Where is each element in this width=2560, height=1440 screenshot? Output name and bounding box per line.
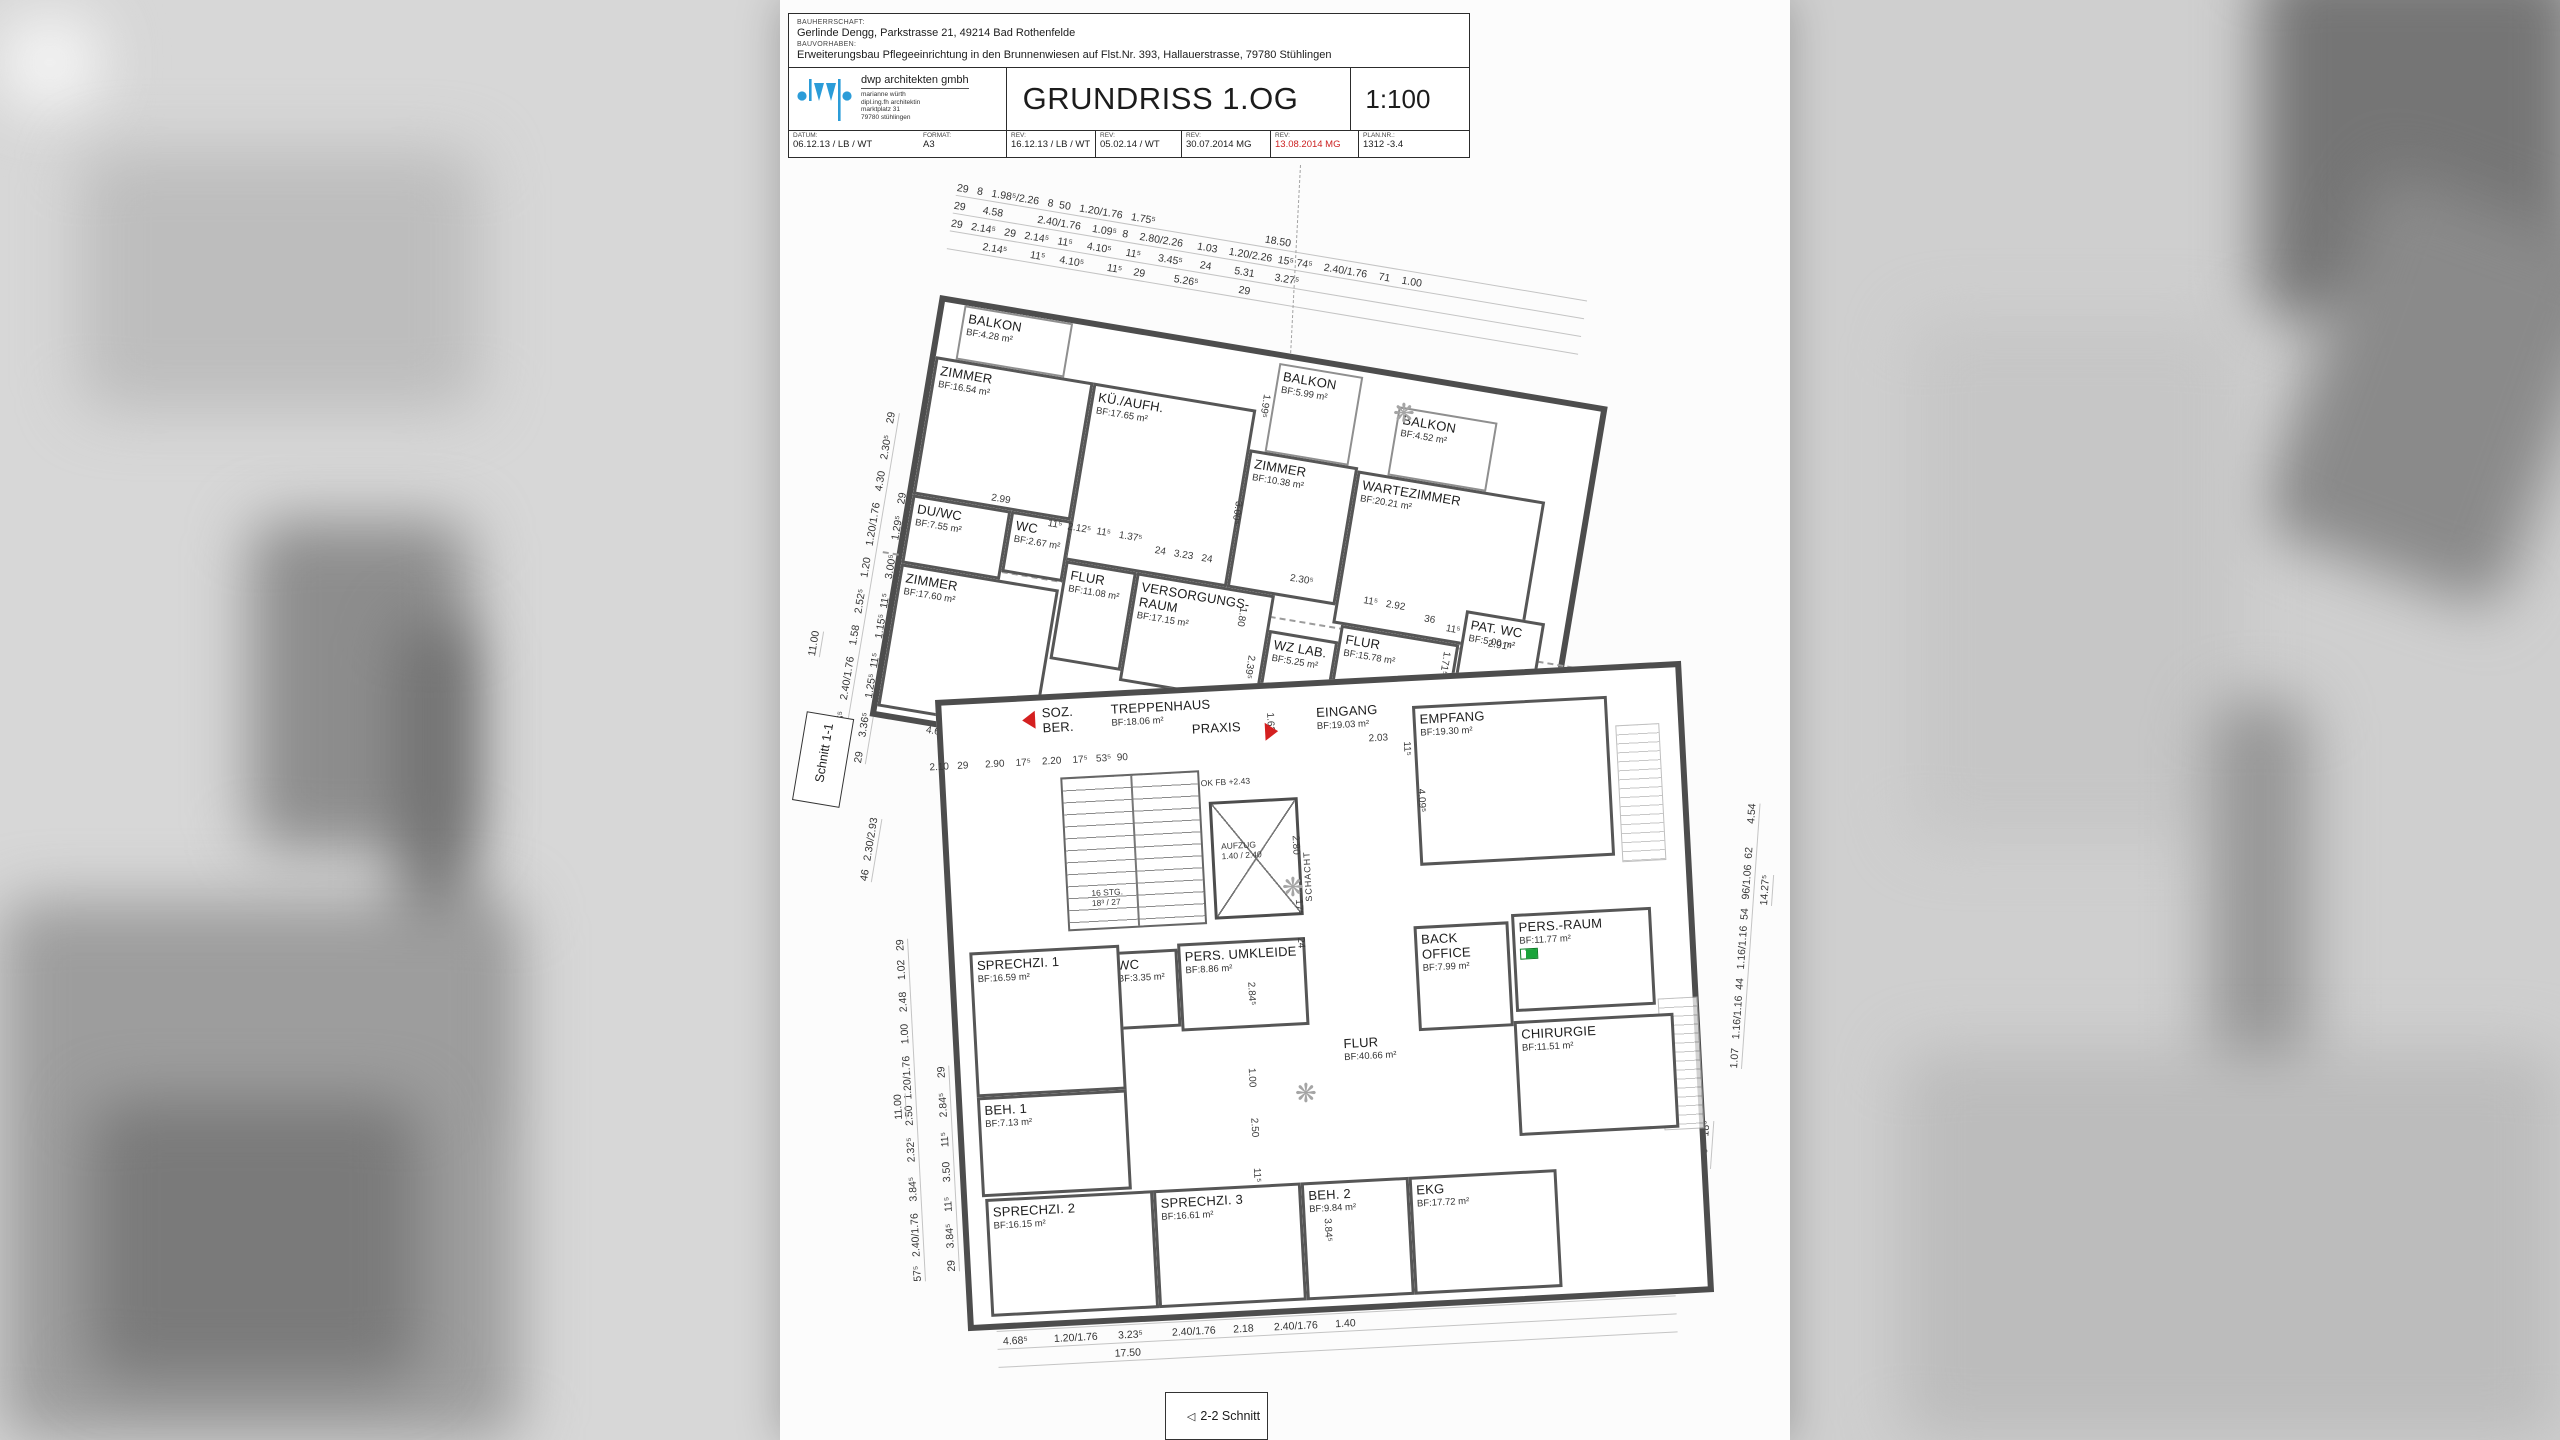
dimension-label: 2.84⁵ <box>1245 982 1257 1006</box>
room-pers-raum: PERS.-RAUMBF:11.77 m² <box>1511 907 1656 1012</box>
architect-address-line: marktplatz 31 <box>861 106 969 114</box>
dimension-label: 4.09⁵ <box>1415 788 1427 812</box>
staircase <box>1060 770 1207 931</box>
dimension-label: 1.00 <box>1246 1068 1258 1088</box>
dimension-label: 2.03 <box>1368 732 1388 744</box>
room-name: WC <box>1117 955 1172 973</box>
dimension-label: 11⁵ <box>1401 741 1413 756</box>
elevator-label: AUFZUG 1.40 / 2.40 <box>1221 839 1262 861</box>
firm-name: dwp architekten gmbh <box>861 74 969 89</box>
plant-symbol: ❋ <box>1295 1078 1317 1109</box>
title-block: BAUHERRSCHAFT: Gerlinde Dengg, Parkstras… <box>788 13 1470 158</box>
bauherrschaft-label: BAUHERRSCHAFT: <box>797 19 1461 26</box>
red-triangle-right-icon <box>1265 722 1279 741</box>
room-treppenhaus: TREPPENHAUSBF:18.06 m² <box>1106 692 1238 739</box>
room-balkon: BALKONBF:5.99 m² <box>1265 363 1364 466</box>
room-empfang: EMPFANGBF:19.30 m² <box>1412 696 1615 866</box>
room-back-office: BACK OFFICEBF:7.99 m² <box>1413 921 1513 1031</box>
lower-wing-praxis: AUFZUG 1.40 / 2.40 SCHACHT SOZ. BER.PRAX… <box>935 661 1714 1331</box>
meta-cell: REV:30.07.2014 MG <box>1181 131 1270 157</box>
room-sprechzi-3: SPRECHZI. 3BF:16.61 m² <box>1153 1183 1307 1309</box>
room-soz-ber: SOZ. BER. <box>1037 700 1094 743</box>
screenshot-root: BAUHERRSCHAFT: Gerlinde Dengg, Parkstras… <box>0 0 2560 1440</box>
blurred-background-right <box>1790 0 2560 1440</box>
architect-address-line: marianne würth <box>861 91 969 99</box>
plant-symbol: ❋ <box>1282 872 1304 903</box>
revision-row: DATUM:06.12.13 / LB / WTFORMAT:A3REV:16.… <box>789 131 1469 157</box>
dimension-label: 2.50 <box>1248 1118 1260 1138</box>
room-sprechzi-2: SPRECHZI. 2BF:16.15 m² <box>985 1190 1159 1317</box>
dimension-label: 11⁵ <box>1251 1168 1263 1183</box>
drawing-title: GRUNDRISS 1.OG <box>1006 68 1351 130</box>
meta-cell: REV:05.02.14 / WT <box>1095 131 1181 157</box>
dimension-label: 11⁵ <box>1445 623 1461 636</box>
meta-cell: PLAN.NR.:1312 -3.4 <box>1358 131 1469 157</box>
dimension-label: 24 <box>1295 937 1307 949</box>
bauherrschaft-value: Gerlinde Dengg, Parkstrasse 21, 49214 Ba… <box>797 27 1461 39</box>
dwp-logo-icon <box>797 74 853 122</box>
room-beh-2: BEH. 2BF:9.84 m² <box>1301 1177 1415 1300</box>
dimension-label: 2.80 <box>1290 835 1302 855</box>
bauvorhaben-label: BAUVORHABEN: <box>797 41 1461 48</box>
drawing-scale: 1:100 <box>1350 68 1469 130</box>
dimension-label: 16 STG. 18³ / 27 <box>1091 886 1124 908</box>
architect-address-line: dipl.ing.fh architektin <box>861 99 969 107</box>
room-beh-1: BEH. 1BF:7.13 m² <box>977 1090 1132 1198</box>
exterior-stairs-right <box>1615 723 1666 862</box>
room-ekg: EKGBF:17.72 m² <box>1409 1169 1563 1295</box>
section-arrow-icon: ◁ <box>1187 1411 1195 1423</box>
meta-cell: REV:16.12.13 / LB / WT <box>1006 131 1095 157</box>
architect-address: marianne würthdipl.ing.fh architektinmar… <box>861 91 969 121</box>
exit-sign-icon <box>1520 948 1539 960</box>
meta-cell: DATUM:06.12.13 / LB / WT <box>789 131 919 157</box>
room-name: BACK OFFICE <box>1421 928 1503 962</box>
bauvorhaben-value: Erweiterungsbau Pflegeeinrichtung in den… <box>797 49 1461 61</box>
dimension-label: OK FB +2.43 <box>1200 776 1250 789</box>
dimension-row: 11.00 <box>892 1094 907 1120</box>
red-triangle-left-icon <box>1022 711 1036 730</box>
dimension-label: 3.84⁵ <box>1322 1218 1334 1242</box>
room-flur: FLURBF:40.66 m² <box>1339 1029 1431 1074</box>
blurred-background-left <box>0 0 780 1440</box>
room-sprechzi-1: SPRECHZI. 1BF:16.59 m² <box>969 945 1126 1098</box>
dimension-label: 36 <box>1423 613 1436 626</box>
title-block-header: BAUHERRSCHAFT: Gerlinde Dengg, Parkstras… <box>789 14 1469 68</box>
dimension-label: 2.10 29 2.90 17⁵ 2.20 17⁵ 53⁵ 90 <box>929 752 1128 773</box>
meta-cell: REV:13.08.2014 MG <box>1270 131 1358 157</box>
architect-cell: dwp architekten gmbh marianne würthdipl.… <box>789 68 1006 130</box>
room-pers-umkleide: PERS. UMKLEIDEBF:8.86 m² <box>1177 937 1309 1032</box>
section-tag-2-2: ◁2-2 Schnitt <box>1165 1392 1268 1440</box>
room-chirurgie: CHIRURGIEBF:11.51 m² <box>1514 1013 1680 1136</box>
room-area: BF:3.35 m² <box>1118 971 1173 985</box>
room-name: SOZ. BER. <box>1041 703 1090 735</box>
architect-address-line: 79780 stühlingen <box>861 114 969 122</box>
meta-cell: FORMAT:A3 <box>919 131 1006 157</box>
plant-symbol: ❋ <box>1393 398 1415 429</box>
dimension-row: 14.27⁵ <box>1758 874 1774 906</box>
